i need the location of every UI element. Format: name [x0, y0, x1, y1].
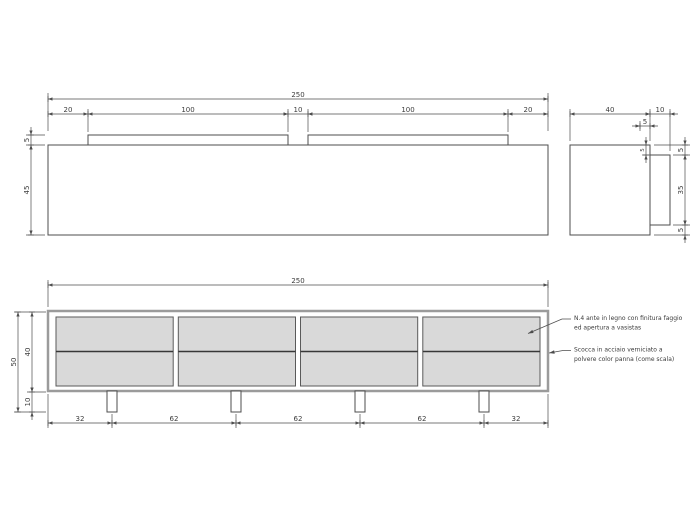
dim-arrow-icon — [636, 124, 641, 127]
dim-label: 100 — [181, 106, 194, 114]
dim-label: 250 — [291, 277, 304, 285]
doors-note-line2: ed apertura a vasistas — [574, 325, 641, 332]
dim-label: 100 — [401, 106, 414, 114]
dim-arrow-icon — [236, 421, 241, 424]
front-leg-4 — [479, 391, 489, 412]
dim-label: 50 — [10, 358, 18, 367]
shell-note-line1: Scocca in acciaio verniciato a — [574, 347, 663, 354]
dim-label: 32 — [512, 415, 521, 423]
dim-label: 62 — [294, 415, 303, 423]
dim-arrow-icon — [84, 112, 89, 115]
dim-label: 45 — [23, 186, 31, 195]
dim-arrow-icon — [570, 112, 575, 115]
dim-arrow-icon — [360, 421, 365, 424]
front-view — [48, 311, 548, 412]
dim-arrow-icon — [108, 421, 113, 424]
dim-label: 62 — [418, 415, 427, 423]
dim-arrow-icon — [29, 231, 32, 236]
dim-arrow-icon — [480, 421, 485, 424]
dim-arrow-icon — [48, 97, 53, 100]
dim-arrow-icon — [356, 421, 361, 424]
dim-label: 10 — [24, 398, 32, 407]
dim-arrow-icon — [48, 283, 53, 286]
dim-arrow-icon — [16, 408, 19, 413]
dim-arrow-icon — [646, 112, 651, 115]
dim-label: 20 — [64, 106, 73, 114]
side-door — [650, 155, 670, 225]
dim-label: 10 — [294, 106, 303, 114]
dim-arrow-icon — [88, 112, 93, 115]
dim-arrow-icon — [644, 141, 647, 146]
dim-arrow-icon — [284, 112, 289, 115]
front-leg-3 — [355, 391, 365, 412]
dim-arrow-icon — [29, 145, 32, 150]
dim-arrow-icon — [30, 312, 33, 317]
drawing-canvas: N.4 ante in legno con finitura faggio ed… — [0, 0, 700, 525]
dim-arrow-icon — [683, 155, 686, 160]
doors-note-line1: N.4 ante in legno con finitura faggio — [574, 315, 683, 322]
shell-note-line2: polvere color panna (come scala) — [574, 356, 674, 363]
front-leg-2 — [231, 391, 241, 412]
dim-arrow-icon — [16, 312, 19, 317]
dim-arrow-icon — [544, 112, 549, 115]
dim-label: 40 — [606, 106, 615, 114]
plan-rail-left — [88, 135, 288, 145]
dim-arrow-icon — [48, 421, 53, 424]
dim-arrow-icon — [508, 112, 513, 115]
dim-label: 35 — [677, 186, 685, 195]
technical-drawing: N.4 ante in legno con finitura faggio ed… — [0, 0, 700, 525]
dim-arrow-icon — [544, 97, 549, 100]
dim-label: 10 — [656, 106, 665, 114]
dim-label: 5 — [643, 118, 647, 126]
dim-label: 5 — [677, 148, 685, 152]
dim-arrow-icon — [683, 221, 686, 226]
annotations: N.4 ante in legno con finitura faggio ed… — [528, 315, 683, 363]
dim-arrow-icon — [544, 421, 549, 424]
dim-arrow-icon — [232, 421, 237, 424]
dim-label: 250 — [291, 91, 304, 99]
dim-arrow-icon — [30, 412, 33, 417]
side-view — [570, 145, 670, 235]
front-leg-1 — [107, 391, 117, 412]
dim-arrow-icon — [504, 112, 509, 115]
dim-arrow-icon — [650, 124, 655, 127]
dim-arrow-icon — [308, 112, 313, 115]
side-body — [570, 145, 650, 235]
plan-body — [48, 145, 548, 235]
dim-label: 5 — [640, 148, 646, 152]
dim-arrow-icon — [112, 421, 117, 424]
dim-label: 5 — [23, 138, 31, 142]
dim-arrow-icon — [30, 388, 33, 393]
dim-label: 5 — [677, 228, 685, 232]
dim-arrow-icon — [683, 141, 686, 146]
plan-rail-right — [308, 135, 508, 145]
plan-view — [48, 135, 548, 235]
dim-label: 32 — [76, 415, 85, 423]
dim-arrow-icon — [484, 421, 489, 424]
dim-arrow-icon — [683, 235, 686, 240]
dim-label: 40 — [24, 348, 32, 357]
dim-arrow-icon — [670, 112, 675, 115]
dim-arrow-icon — [48, 112, 53, 115]
dim-label: 62 — [170, 415, 179, 423]
dim-arrow-icon — [29, 131, 32, 136]
dim-arrow-icon — [544, 283, 549, 286]
dim-label: 20 — [524, 106, 533, 114]
